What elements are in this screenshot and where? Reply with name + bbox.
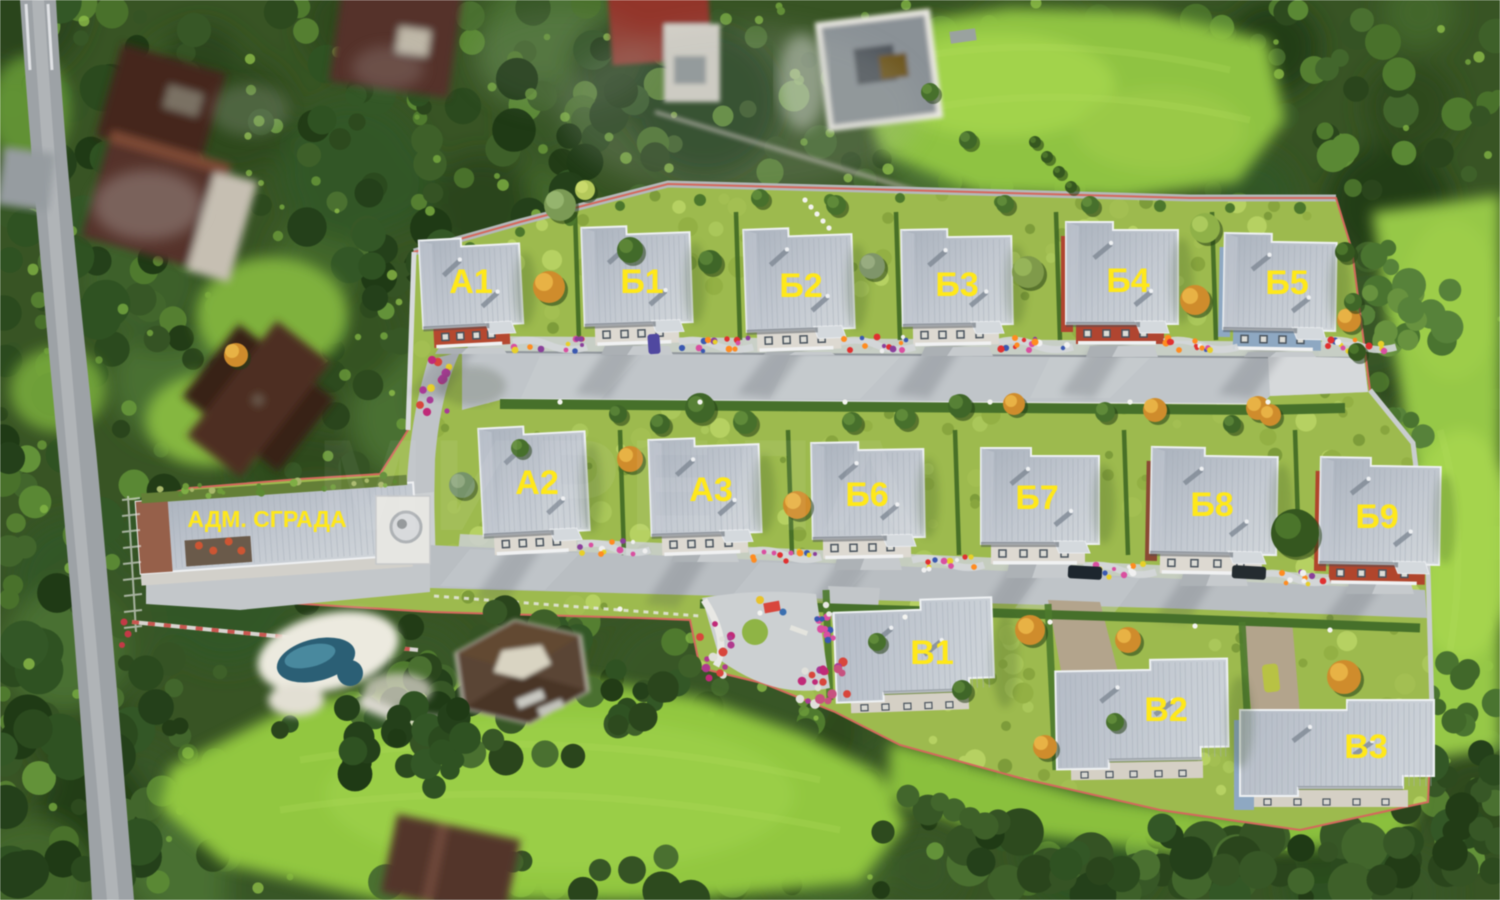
svg-text:Б5: Б5 [1265,264,1308,302]
svg-text:Б9: Б9 [1355,498,1398,536]
svg-text:Б1: Б1 [620,263,663,301]
svg-text:А2: А2 [515,464,558,502]
svg-text:В3: В3 [1344,728,1387,766]
svg-text:Б8: Б8 [1190,486,1233,524]
svg-text:Б6: Б6 [845,476,888,514]
svg-text:МИРЕЛА: МИРЕЛА [316,412,924,558]
svg-text:Б7: Б7 [1015,479,1058,517]
svg-text:Б3: Б3 [935,266,978,304]
svg-text:Б2: Б2 [779,267,822,305]
svg-text:АДМ. СГРАДА: АДМ. СГРАДА [187,506,346,532]
svg-text:Б4: Б4 [1106,262,1149,300]
svg-text:А1: А1 [449,263,492,301]
svg-text:В1: В1 [910,634,953,672]
svg-text:А3: А3 [689,471,732,509]
svg-text:В2: В2 [1144,691,1187,729]
